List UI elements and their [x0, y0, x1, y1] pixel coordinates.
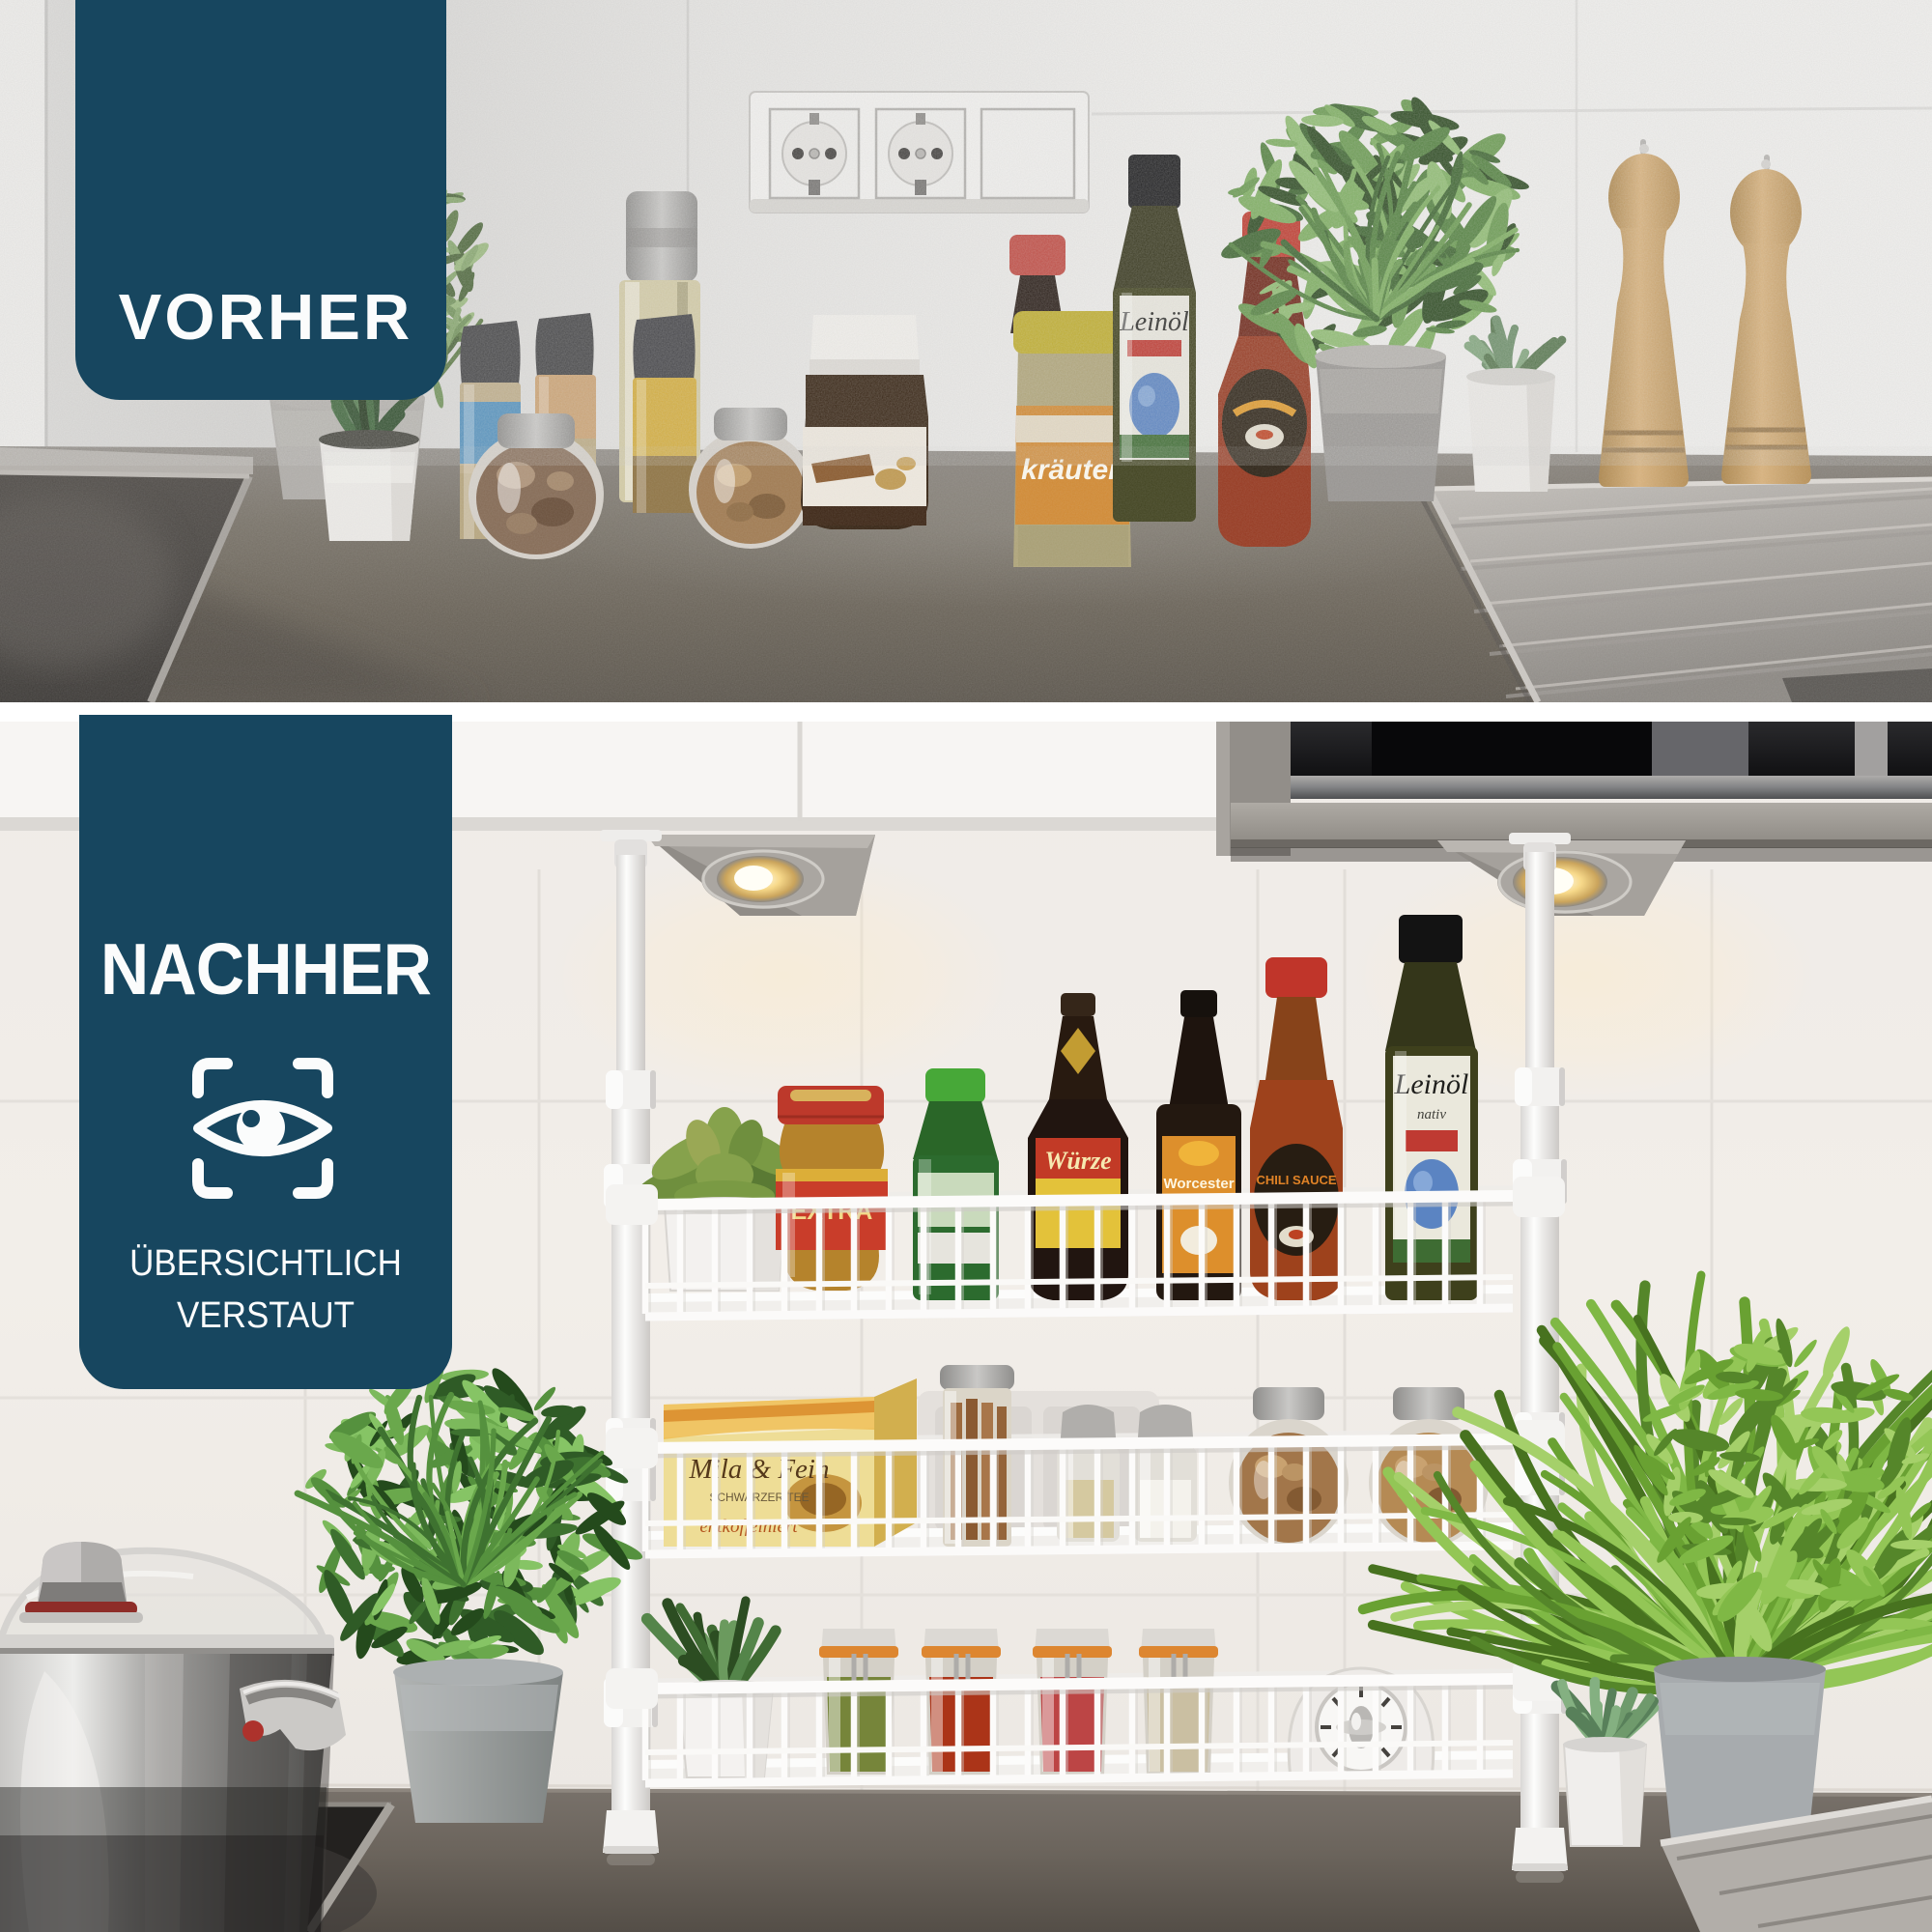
svg-text:Worcester: Worcester: [1163, 1176, 1234, 1192]
svg-text:nativ: nativ: [1417, 1107, 1446, 1122]
svg-text:Würze: Würze: [1044, 1147, 1111, 1175]
svg-text:SCHWARZER TEE: SCHWARZER TEE: [709, 1491, 809, 1504]
svg-text:Mila & Fein: Mila & Fein: [689, 1454, 830, 1485]
svg-text:CHILI SAUCE: CHILI SAUCE: [1256, 1173, 1336, 1187]
